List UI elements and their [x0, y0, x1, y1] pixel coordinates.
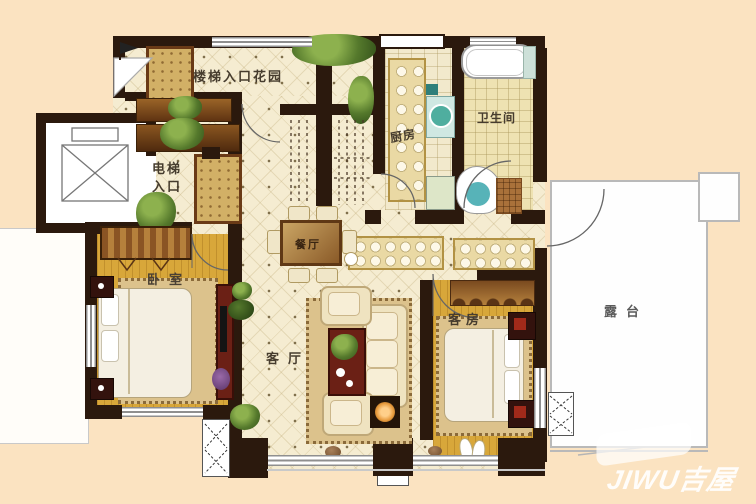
dining-chair-3	[288, 268, 310, 283]
wall-living-guest	[420, 280, 433, 440]
guest-nightstand-2-accent	[514, 406, 526, 418]
guest-duvet-line	[492, 330, 494, 418]
sofa-cushion-2	[366, 340, 398, 368]
guest-nightstand-1-accent	[514, 318, 526, 330]
armchair-bottom-cushion	[330, 400, 362, 426]
window-garden-top	[212, 37, 312, 47]
wall-bedroom-bottom-left	[85, 405, 122, 419]
bedroom-flower	[212, 368, 230, 390]
garden-label: 楼梯入口花园	[193, 66, 283, 85]
window-bedroom-bottom	[122, 407, 203, 417]
guest-curtain-band	[450, 280, 535, 306]
dining-chair-1	[288, 206, 310, 221]
window-bedroom-left	[86, 305, 96, 367]
bedroom-wardrobe	[100, 226, 192, 260]
bedroom-pillow-2	[101, 330, 119, 362]
sill-line-bottom	[267, 469, 545, 471]
kitchen-sink-bowl	[429, 104, 453, 128]
window-living-bottom	[268, 455, 373, 466]
kitchen-window	[379, 34, 445, 49]
dining-chair-2	[316, 206, 338, 221]
wall-right-lower	[533, 248, 547, 462]
sofa-cushion-3	[366, 368, 398, 396]
adjacent-unit-block	[0, 228, 89, 444]
elevator-entrance-label: 电梯 入口	[152, 160, 182, 196]
kitchen-stove	[426, 176, 455, 210]
notch-under-block-b	[377, 476, 409, 486]
bathtub-inner	[466, 49, 526, 76]
hall-cabinet-right	[453, 238, 535, 270]
kitchen-appliance	[426, 84, 438, 95]
flue-box-terrace	[548, 392, 574, 436]
watermark-logo: JIWU吉屋	[605, 458, 739, 497]
bath-sink-bowl	[464, 180, 492, 208]
nightstand-knob-1	[98, 283, 104, 289]
bedroom-pillow-1	[101, 294, 119, 326]
nightstand-knob-2	[98, 385, 104, 391]
window-guest-bottom	[413, 455, 498, 466]
tea-tray	[344, 252, 358, 266]
hall-cabinet-left	[348, 236, 444, 270]
bathtub-end-panel	[523, 46, 536, 79]
floor-plan-canvas: 楼梯入口花园 电梯 入口 厨房 卫生间 餐厅 卧室 客厅 客房 露台 JIWU吉…	[0, 0, 756, 504]
floor-lamp-glow	[375, 402, 395, 422]
guest-pillow-2	[504, 370, 520, 404]
wall-garden-left	[113, 44, 125, 98]
dining-label: 餐厅	[295, 236, 321, 252]
elevator-label-line1: 电梯	[152, 160, 182, 178]
terrace-notch	[698, 172, 740, 222]
elevator-hall-bench	[194, 154, 242, 224]
window-guest-right	[534, 368, 546, 428]
dining-chair-6	[342, 230, 357, 254]
tv-screen	[220, 306, 227, 352]
bench-side-box	[202, 147, 220, 159]
bedroom-label: 卧室	[147, 269, 191, 288]
terrace-label: 露台	[604, 301, 648, 320]
wall-bottom-block-a	[228, 438, 268, 478]
dining-chair-4	[316, 268, 338, 283]
elevator-label-line2: 入口	[152, 178, 182, 196]
wall-kitchen-left	[373, 48, 385, 174]
bedroom-duvet-line	[128, 289, 130, 394]
guest-label: 客房	[448, 309, 484, 328]
living-label: 客厅	[266, 348, 310, 367]
window-bath-top	[470, 37, 516, 46]
wall-kitchen-bottom-a	[365, 210, 381, 224]
wall-kitchen-bottom-b	[415, 210, 464, 224]
bath-mat	[496, 178, 522, 214]
flue-box-bedroom	[202, 419, 230, 477]
coffee-cup-1	[336, 368, 345, 377]
armchair-top-cushion	[328, 292, 360, 316]
bathroom-label: 卫生间	[477, 109, 516, 126]
coffee-cup-2	[346, 380, 353, 387]
